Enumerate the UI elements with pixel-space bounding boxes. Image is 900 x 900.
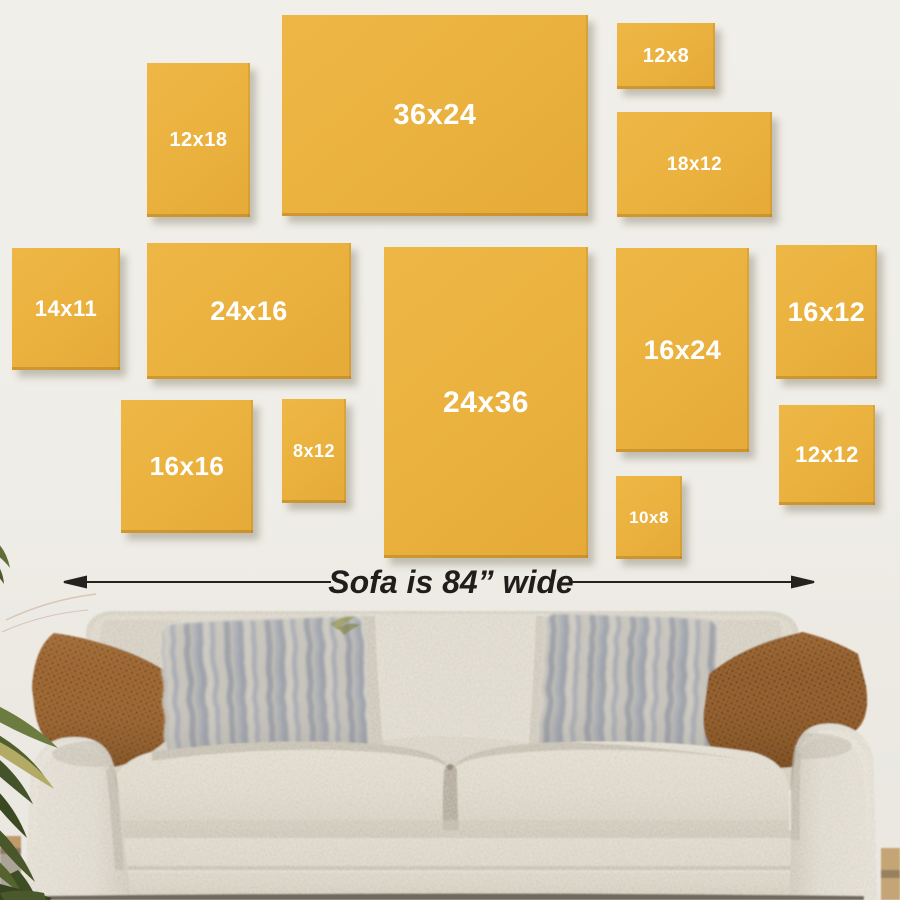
svg-text:Sofa is 84” wide: Sofa is 84” wide (328, 564, 573, 600)
